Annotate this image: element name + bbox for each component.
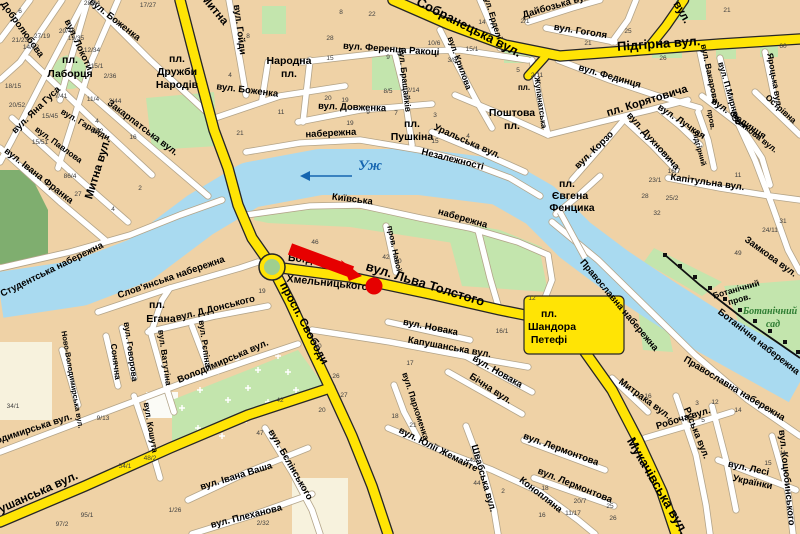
house-number: 16 (644, 393, 652, 400)
house-number: 40 (394, 258, 402, 265)
street-label: Поштова (489, 107, 535, 119)
street-label: Фенцика (549, 202, 594, 214)
house-number: 2 (138, 185, 142, 192)
house-number: 19 (341, 97, 349, 104)
house-number: 3/8 (447, 57, 456, 64)
house-number: 18 (391, 413, 399, 420)
street-label: пл. (559, 178, 575, 190)
house-number: 7/41 (55, 93, 68, 100)
railway-tick (708, 286, 712, 290)
house-number: 22 (368, 11, 376, 18)
house-number: 20/7 (574, 498, 587, 505)
street-label: Шандора (528, 321, 576, 333)
park-area (262, 6, 286, 34)
street-label: Народів (156, 79, 199, 91)
street-label: пл. (404, 118, 420, 130)
house-number: 2/36 (104, 73, 117, 80)
house-number: 28 (326, 35, 334, 42)
house-number: 17/27 (140, 2, 157, 9)
street-label: Євгена (552, 190, 588, 202)
house-number: 2/11 (531, 72, 544, 79)
house-number: 28 (641, 193, 649, 200)
house-number: 20/42 (59, 28, 76, 35)
house-number: 14/12 (23, 44, 40, 51)
house-number: 17 (406, 360, 414, 367)
house-number: 19 (346, 120, 354, 127)
house-number: 5 (701, 417, 705, 424)
house-number: 12 (528, 295, 536, 302)
house-number: 60 (779, 43, 787, 50)
house-number: 20 (324, 95, 332, 102)
house-number: 18 (541, 485, 549, 492)
house-number: 34/1 (7, 403, 20, 410)
street-label: Народна (267, 55, 312, 67)
house-number: 11 (278, 109, 285, 116)
street-label: Уж (358, 158, 382, 174)
house-number: 2/14 (407, 87, 420, 94)
house-number: 21 (584, 40, 592, 47)
house-number: 16 (129, 134, 137, 141)
house-number: 32 (653, 210, 661, 217)
house-number: 4 (111, 206, 115, 213)
house-number: 15/1 (466, 46, 479, 53)
house-number: 25 (606, 503, 614, 510)
railway-tick (678, 264, 682, 268)
house-number: 95/1 (81, 512, 94, 519)
house-number: 86/4 (64, 173, 77, 180)
house-number: 31 (779, 218, 787, 225)
street-label: Пушкіна (391, 131, 434, 143)
house-number: 27 (74, 191, 82, 198)
house-number: 48/2 (144, 455, 157, 462)
house-number: 15/45 (42, 113, 59, 120)
street-label: Ботанічний (742, 306, 798, 317)
house-number: 21 (409, 422, 417, 429)
house-number: 11/17 (565, 510, 581, 517)
house-number: 1/26 (169, 507, 182, 514)
house-number: 26 (659, 55, 667, 62)
house-number: 26 (609, 515, 617, 522)
house-number: 18/15 (5, 83, 22, 90)
house-number: 11/4 (87, 96, 100, 103)
railway-tick (693, 275, 697, 279)
railway-tick (796, 350, 800, 354)
city-map-canvas[interactable]: МитнаМитна вул.просп. Свободивул. Льва Т… (0, 0, 800, 534)
house-number: 14 (734, 407, 742, 414)
house-number: 23/1 (649, 177, 662, 184)
house-number: 97/2 (56, 521, 69, 528)
house-number: 26 (332, 373, 340, 380)
house-number: 3 (695, 400, 699, 407)
house-number: 7 (394, 110, 398, 117)
house-number: 54/1 (119, 463, 132, 470)
street-label: Петефі (531, 334, 567, 346)
house-number: 28/34 (84, 0, 101, 7)
house-number: 42 (469, 457, 477, 464)
house-number: 19/35 (68, 35, 85, 42)
house-number: 15 (764, 460, 772, 467)
house-number: 11 (780, 450, 787, 457)
house-number: 5 (516, 67, 520, 74)
railway-tick (783, 340, 787, 344)
house-number: 14 (478, 19, 486, 26)
house-number: 21 (236, 130, 244, 137)
house-number: 20 (314, 343, 322, 350)
house-number: 9/13 (97, 415, 110, 422)
house-number: 3 (433, 112, 437, 119)
roundabout-green (264, 259, 280, 275)
street-label: Дружби (157, 66, 197, 78)
house-number: 49 (734, 250, 742, 257)
house-number: 8 (246, 33, 250, 40)
house-number: 25/2 (666, 195, 679, 202)
house-number: 21 (723, 7, 731, 14)
railway-tick (753, 319, 757, 323)
house-number: 2/32 (257, 520, 270, 527)
house-number: 16 (538, 512, 546, 519)
house-number: 4 (466, 133, 470, 140)
house-number: 9 (366, 109, 370, 116)
street-label: пл. (541, 308, 557, 320)
house-number: 19 (258, 288, 266, 295)
railway-tick (738, 308, 742, 312)
house-number: 2 (501, 488, 505, 495)
house-number: 2/52 (91, 128, 104, 135)
railway-tick (663, 253, 667, 257)
house-number: 42 (276, 397, 284, 404)
house-number: 12/34 (84, 47, 101, 54)
house-number: 8/5 (383, 88, 392, 95)
house-number: 46 (311, 239, 319, 246)
house-number: 6 (18, 8, 22, 15)
street-label: пл. (149, 299, 165, 311)
house-number: 15 (431, 138, 439, 145)
house-number: 20 (318, 407, 326, 414)
map-viewport[interactable]: МитнаМитна вул.просп. Свободивул. Льва Т… (0, 0, 800, 534)
house-number: 27/19 (34, 33, 51, 40)
street-label: пл. (281, 68, 297, 80)
red-dot-marker (366, 278, 383, 295)
street-label: пл. (62, 54, 78, 66)
house-number: 2/44 (109, 98, 122, 105)
house-number: 15/51 (32, 139, 49, 146)
street-label: пл. (518, 83, 530, 92)
house-number: 47 (256, 430, 264, 437)
house-number: 16/1 (496, 328, 509, 335)
house-number: 4 (95, 118, 99, 125)
house-number: 9 (386, 54, 390, 61)
house-number: 4 (228, 72, 232, 79)
house-number: 42 (382, 254, 390, 261)
house-number: 44 (473, 480, 481, 487)
street-label: сад (766, 319, 780, 330)
street-label: пл. (169, 53, 185, 65)
house-number: 21/23 (12, 37, 29, 44)
house-number: 15/1 (91, 63, 104, 70)
house-number: 8 (339, 9, 343, 16)
house-number: 25 (624, 28, 632, 35)
house-number: 16/7 (668, 168, 681, 175)
house-number: 20/52 (9, 102, 26, 109)
house-number: 15 (326, 55, 334, 62)
house-number: 12 (711, 399, 719, 406)
street-label: пл. (504, 120, 520, 132)
house-number: 24/11 (762, 227, 778, 234)
house-number: 11 (735, 172, 742, 179)
house-number: 27 (340, 392, 348, 399)
street-label: Егана (146, 313, 176, 325)
house-number: 2/1 (520, 18, 529, 25)
house-number: 10/6 (428, 40, 441, 47)
